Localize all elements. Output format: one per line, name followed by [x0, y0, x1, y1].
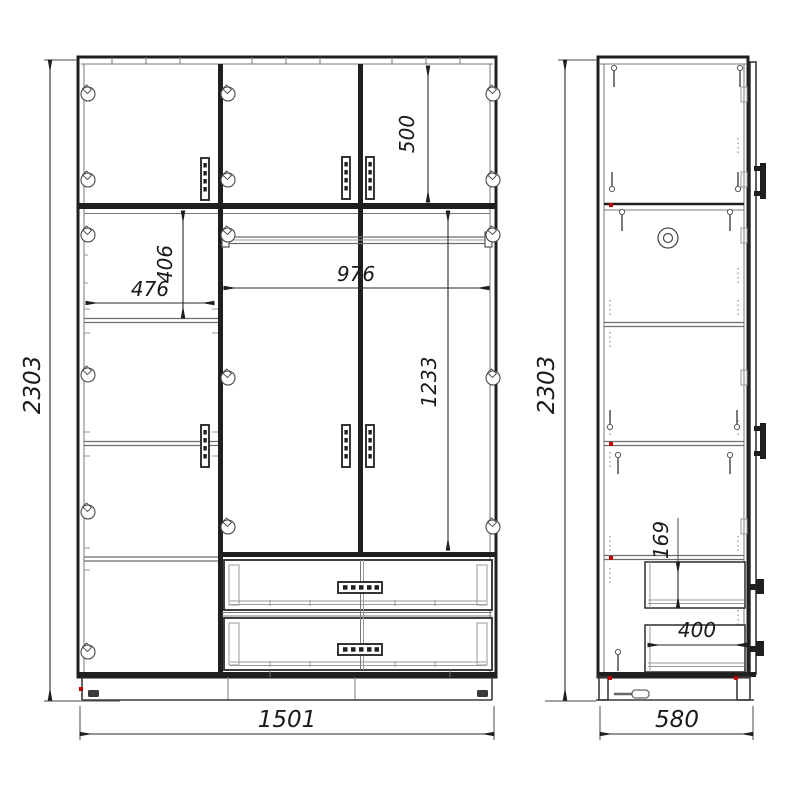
dim-middle-section-height-label: 1233: [417, 357, 441, 408]
left-foot: [88, 690, 99, 697]
bottom-panel: [78, 672, 496, 677]
dim-front-width: 1501: [80, 706, 494, 740]
dim-top-section-height-label: 500: [395, 115, 419, 153]
top-band-divider: [78, 203, 496, 209]
dim-side-depth: 580: [600, 706, 753, 740]
dim-front-height-label: 2303: [20, 356, 46, 415]
left-partition: [218, 64, 223, 677]
dim-side-depth-label: 580: [655, 707, 699, 733]
dim-side-height-label: 2303: [534, 356, 560, 415]
front-view: 2303 1501 476 406 976 500 1233: [20, 57, 500, 740]
fastener-mark: [609, 203, 613, 207]
dim-middle-section-width-label: 976: [337, 262, 375, 286]
side-plinth: [596, 677, 754, 700]
fastener-mark: [609, 442, 613, 446]
side-view: 2303 580 169 400: [534, 57, 766, 740]
drawer-top-panel: [220, 552, 496, 557]
dim-left-shelf-height-label: 406: [153, 245, 177, 283]
center-partition: [358, 64, 363, 552]
fastener-mark: [609, 556, 613, 560]
dim-drawer-front-height-label: 169: [649, 521, 673, 559]
front-drawers: [222, 560, 492, 677]
drawer-handle-icon: [338, 644, 382, 655]
dim-front-width-label: 1501: [258, 707, 317, 733]
door-handle-icon: [366, 425, 374, 467]
fastener-mark: [734, 676, 738, 680]
door-handle-icon: [342, 425, 350, 467]
right-foot: [477, 690, 488, 697]
door-handle-icon: [201, 425, 209, 467]
fastener-mark: [608, 676, 612, 680]
side-door-panel: [750, 62, 756, 674]
drawer-profile-1: [645, 562, 745, 608]
dim-drawer-depth-label: 400: [678, 618, 716, 642]
front-plinth: [79, 677, 492, 700]
cad-drawing: 2303 1501 476 406 976 500 1233: [0, 0, 800, 800]
screwdriver-icon: [614, 690, 649, 698]
door-handle-icon: [201, 158, 209, 200]
door-handle-icon: [342, 157, 350, 199]
fastener-mark: [79, 687, 83, 691]
drawer-handle-icon: [338, 582, 382, 593]
dim-side-height: 2303: [534, 60, 596, 701]
drawing-canvas: 2303 1501 476 406 976 500 1233: [0, 0, 800, 800]
door-handle-icon: [366, 157, 374, 199]
